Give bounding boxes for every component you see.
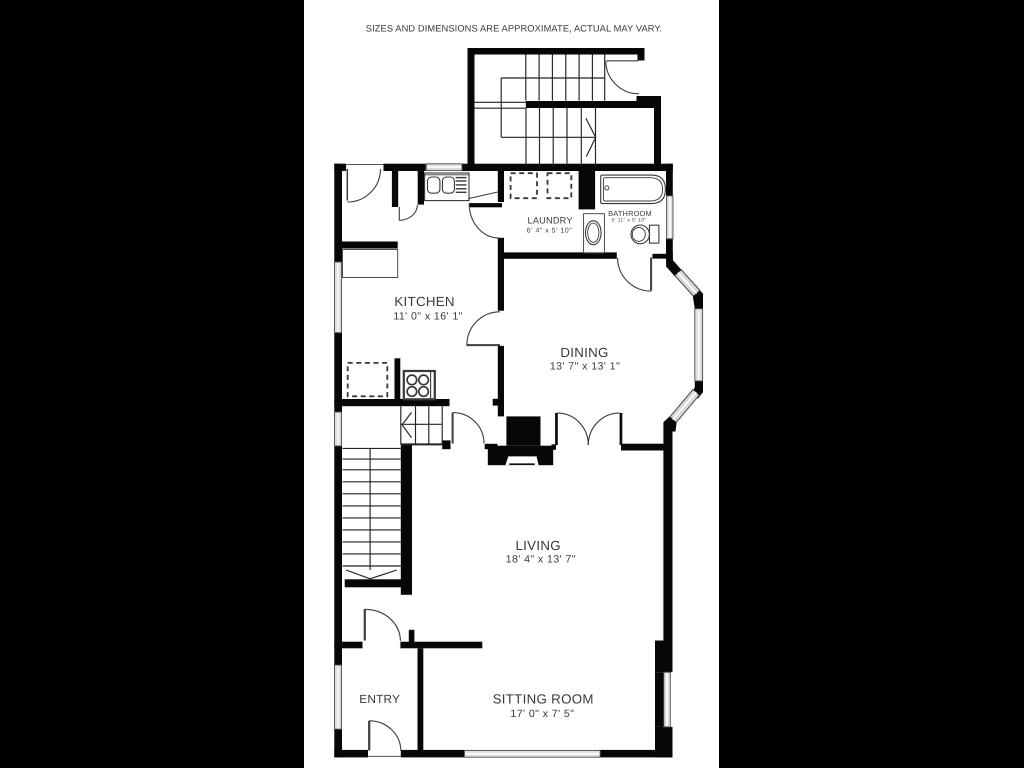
svg-text:SITTING ROOM: SITTING ROOM [493,691,594,706]
svg-text:6' 4" x 5' 10": 6' 4" x 5' 10" [527,227,573,234]
svg-text:LIVING: LIVING [515,538,560,553]
svg-text:11' 0" x 16' 1": 11' 0" x 16' 1" [393,311,463,323]
svg-text:5' 11" x 5' 10": 5' 11" x 5' 10" [611,218,646,224]
svg-text:DINING: DINING [560,345,608,360]
svg-text:BATHROOM: BATHROOM [608,209,652,218]
svg-text:LAUNDRY: LAUNDRY [528,215,573,225]
svg-text:ENTRY: ENTRY [359,692,400,706]
svg-text:17' 0" x 7' 5": 17' 0" x 7' 5" [510,708,574,720]
svg-text:SIZES AND DIMENSIONS ARE APPRO: SIZES AND DIMENSIONS ARE APPROXIMATE, AC… [366,24,662,34]
svg-text:KITCHEN: KITCHEN [394,294,454,309]
svg-text:13' 7" x 13' 1": 13' 7" x 13' 1" [550,360,620,372]
svg-text:18' 4" x 13' 7": 18' 4" x 13' 7" [506,554,576,566]
